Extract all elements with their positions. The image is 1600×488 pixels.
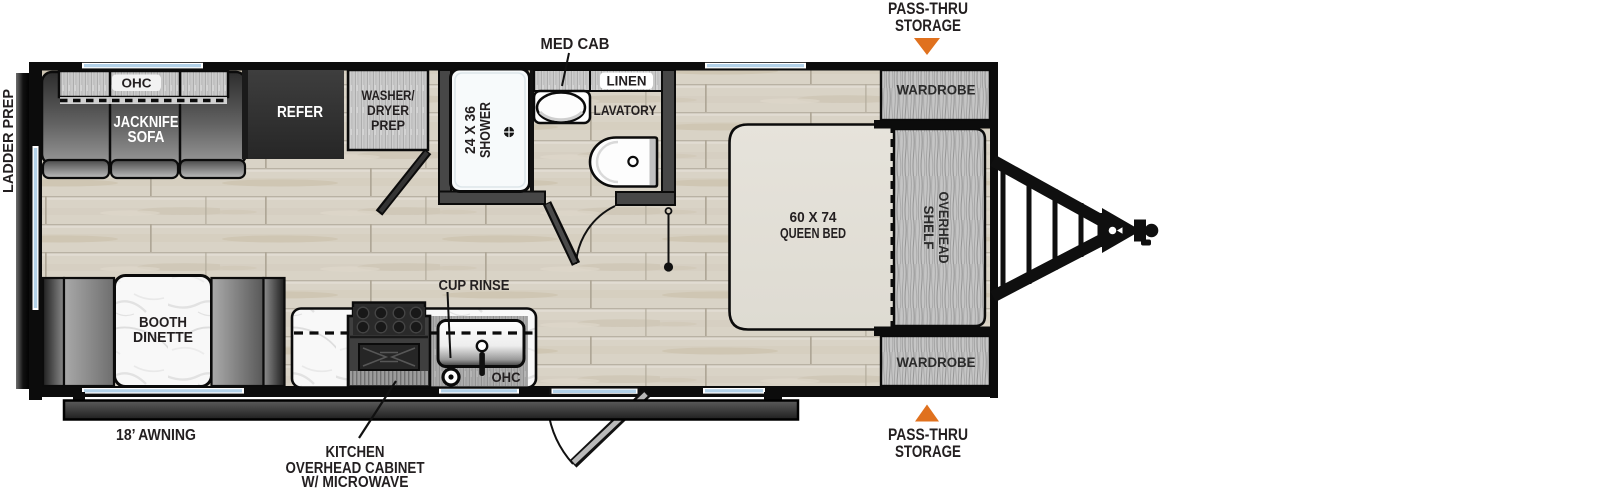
svg-text:DINETTE: DINETTE xyxy=(133,330,193,346)
svg-text:18’ AWNING: 18’ AWNING xyxy=(116,427,196,444)
svg-text:SHOWER: SHOWER xyxy=(478,102,494,158)
svg-text:WARDROBE: WARDROBE xyxy=(897,82,976,98)
svg-text:SOFA: SOFA xyxy=(128,129,165,146)
svg-text:LAVATORY: LAVATORY xyxy=(594,102,658,118)
svg-text:PREP: PREP xyxy=(371,118,405,133)
svg-text:SHELF: SHELF xyxy=(921,206,936,250)
svg-text:24 X 36: 24 X 36 xyxy=(463,106,479,154)
svg-text:WARDROBE: WARDROBE xyxy=(897,354,976,370)
svg-text:STORAGE: STORAGE xyxy=(895,16,961,35)
svg-text:OVERHEAD: OVERHEAD xyxy=(936,192,951,264)
svg-text:REFER: REFER xyxy=(277,104,323,121)
svg-text:KITCHEN: KITCHEN xyxy=(326,444,385,461)
svg-text:CUP RINSE: CUP RINSE xyxy=(439,278,510,294)
svg-text:60 X 74: 60 X 74 xyxy=(790,209,838,226)
svg-text:BOOTH: BOOTH xyxy=(139,315,187,331)
svg-text:LINEN: LINEN xyxy=(607,74,647,89)
svg-text:MED CAB: MED CAB xyxy=(541,36,610,53)
svg-text:DRYER: DRYER xyxy=(367,103,409,118)
svg-text:W/ MICROWAVE: W/ MICROWAVE xyxy=(302,474,409,488)
svg-text:OHC: OHC xyxy=(492,370,521,385)
svg-text:WASHER/: WASHER/ xyxy=(362,88,415,103)
svg-text:STORAGE: STORAGE xyxy=(895,442,961,461)
svg-text:QUEEN BED: QUEEN BED xyxy=(780,225,846,242)
svg-text:LADDER PREP: LADDER PREP xyxy=(0,89,17,193)
svg-text:OHC: OHC xyxy=(122,76,153,91)
